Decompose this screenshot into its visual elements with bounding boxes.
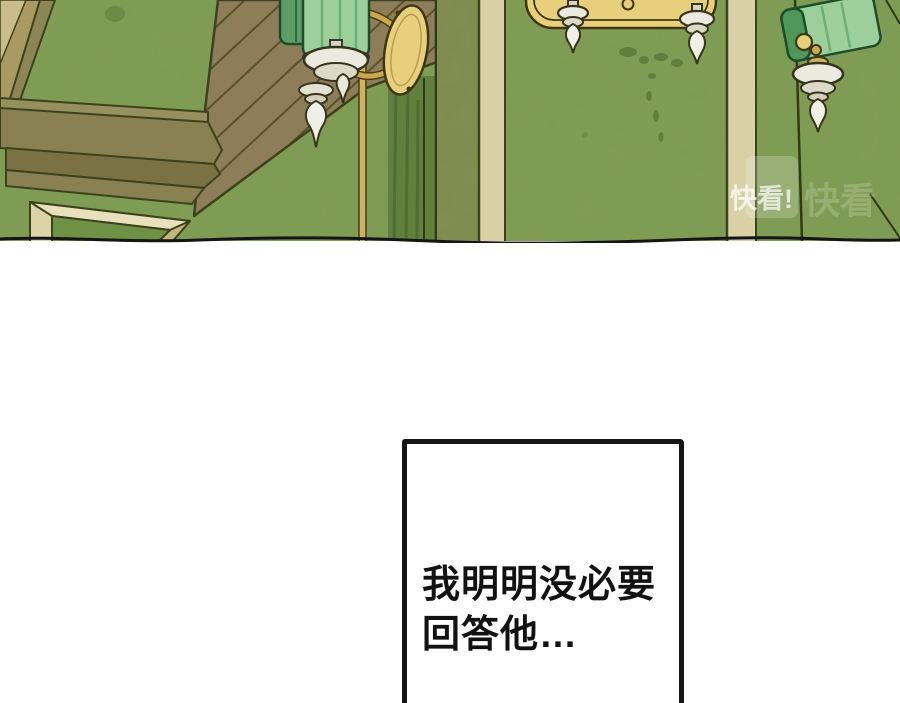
watermark-main-text: 快看! — [730, 184, 793, 214]
pilaster-stripe-left — [479, 0, 505, 241]
wall-stain — [105, 6, 125, 22]
cornice-molding — [0, 98, 222, 204]
olive-band-texture — [437, 0, 479, 241]
caption-line-1: 我明明没必要 — [422, 560, 679, 610]
comic-panel-art: 快看! 快看 — [0, 0, 900, 243]
comic-page: 快看! 快看 我明明没必要 回答他… — [0, 0, 900, 703]
caption-box: 我明明没必要 回答他… — [402, 439, 684, 703]
caption-line-2: 回答他… — [422, 610, 679, 660]
watermark-faint-text: 快看 — [804, 180, 876, 221]
caption-text: 我明明没必要 回答他… — [422, 560, 679, 660]
